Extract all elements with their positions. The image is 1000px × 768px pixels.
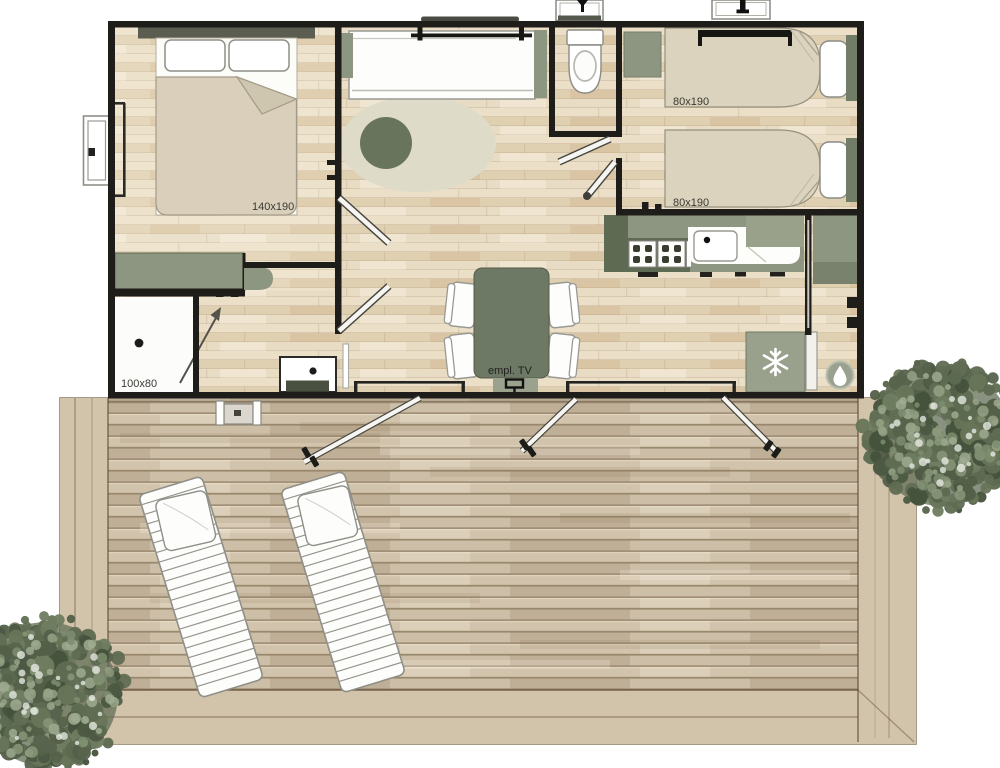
svg-text:80x190: 80x190 <box>673 96 709 108</box>
svg-text:100x80: 100x80 <box>121 378 157 390</box>
svg-text:empl. TV: empl. TV <box>488 365 532 377</box>
svg-text:140x190: 140x190 <box>252 201 294 213</box>
svg-text:80x190: 80x190 <box>673 197 709 209</box>
